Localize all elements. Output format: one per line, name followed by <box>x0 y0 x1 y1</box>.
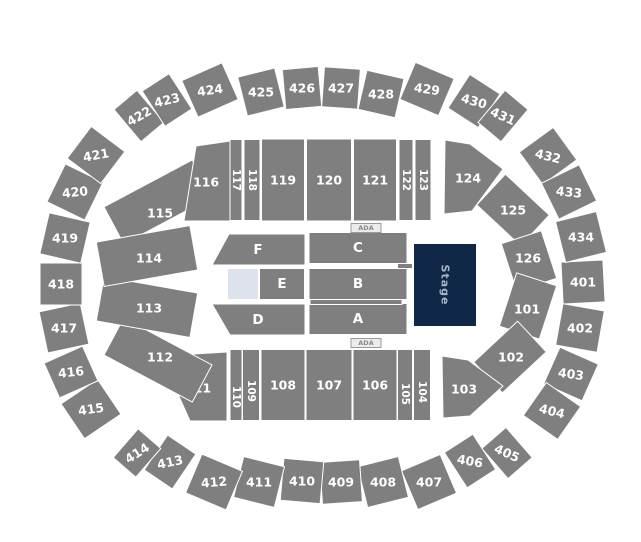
section-122-label: 122 <box>400 169 412 191</box>
floor-F-label: F <box>253 242 262 258</box>
section-427-label: 427 <box>328 81 354 96</box>
section-116[interactable]: 116 <box>184 141 230 221</box>
section-417-label: 417 <box>51 321 77 336</box>
section-113[interactable]: 113 <box>96 277 197 338</box>
section-410[interactable]: 410 <box>280 458 324 503</box>
section-112-label: 112 <box>147 350 173 365</box>
floor-E-label: E <box>277 276 286 292</box>
section-118-label: 118 <box>246 169 258 191</box>
section-114[interactable]: 114 <box>96 226 197 287</box>
floor-C[interactable]: C <box>309 233 407 264</box>
section-425[interactable]: 425 <box>238 68 285 116</box>
section-102-label: 102 <box>498 350 524 365</box>
section-117[interactable]: 117 <box>230 140 242 221</box>
section-411[interactable]: 411 <box>234 457 285 508</box>
section-418-label: 418 <box>48 277 74 292</box>
section-107-label: 107 <box>316 378 342 393</box>
section-119[interactable]: 119 <box>262 139 305 221</box>
floor-D[interactable]: D <box>212 304 305 335</box>
section-103-label: 103 <box>451 382 477 397</box>
floor-D-label: D <box>252 312 263 328</box>
section-420-label: 420 <box>61 183 89 201</box>
section-428[interactable]: 428 <box>358 70 404 118</box>
section-409[interactable]: 409 <box>320 460 363 505</box>
floor-walkway-center <box>310 300 402 305</box>
section-105[interactable]: 105 <box>398 350 413 421</box>
arena-seat-map-page: 4014024034044054064074084094104114124134… <box>0 0 641 542</box>
section-119-label: 119 <box>270 173 296 188</box>
section-433-label: 433 <box>555 183 583 201</box>
section-118[interactable]: 118 <box>244 140 260 221</box>
section-104-label: 104 <box>416 381 428 403</box>
section-419[interactable]: 419 <box>40 213 90 263</box>
section-416-label: 416 <box>57 363 85 381</box>
stage-label: Stage <box>439 265 452 306</box>
section-427[interactable]: 427 <box>322 67 361 109</box>
floor-walkway-center-shape <box>310 300 402 305</box>
section-428-label: 428 <box>368 87 394 102</box>
section-123-label: 123 <box>417 169 429 191</box>
ada-indicator-bottom: ADA <box>351 339 381 348</box>
section-409-label: 409 <box>328 475 354 490</box>
section-104[interactable]: 104 <box>414 350 431 421</box>
section-107[interactable]: 107 <box>306 350 352 421</box>
section-106[interactable]: 106 <box>353 350 397 421</box>
section-106-label: 106 <box>362 378 388 393</box>
section-101-label: 101 <box>514 302 540 317</box>
section-110-shape[interactable] <box>230 350 242 421</box>
floor-walkway-right <box>398 264 413 269</box>
section-101[interactable]: 101 <box>499 273 556 339</box>
section-425-label: 425 <box>248 85 274 100</box>
section-116-label: 116 <box>193 175 219 190</box>
section-401-label: 401 <box>570 275 596 290</box>
section-411-label: 411 <box>246 475 272 490</box>
section-120[interactable]: 120 <box>307 139 352 221</box>
section-126-label: 126 <box>515 251 541 266</box>
section-121-label: 121 <box>362 173 388 188</box>
floor-B-label: B <box>353 276 363 292</box>
section-402-label: 402 <box>567 321 593 336</box>
floor-F[interactable]: F <box>212 234 305 265</box>
open-floor-area <box>228 269 259 300</box>
section-412[interactable]: 412 <box>186 454 243 510</box>
section-113-label: 113 <box>136 301 162 316</box>
section-120-label: 120 <box>316 173 342 188</box>
section-117-label: 117 <box>230 169 242 191</box>
open-floor-area-shape <box>228 269 259 300</box>
section-407[interactable]: 407 <box>401 454 456 509</box>
section-110[interactable]: 110 <box>230 350 242 421</box>
section-109[interactable]: 109 <box>243 350 260 421</box>
section-419-label: 419 <box>52 231 78 246</box>
section-108[interactable]: 108 <box>261 350 305 421</box>
section-434-label: 434 <box>568 230 594 245</box>
section-124-label: 124 <box>455 171 481 186</box>
floor-C-label: C <box>353 240 363 256</box>
section-114-label: 114 <box>136 251 162 266</box>
section-406[interactable]: 406 <box>444 434 495 488</box>
section-418[interactable]: 418 <box>40 263 82 305</box>
section-410-label: 410 <box>289 474 315 489</box>
floor-E[interactable]: E <box>260 269 305 300</box>
floor-walkway-right-shape <box>398 264 413 269</box>
ada-indicator-bottom-label: ADA <box>358 339 373 347</box>
section-408-label: 408 <box>370 475 396 490</box>
section-426-label: 426 <box>289 81 315 96</box>
floor-B[interactable]: B <box>309 269 407 300</box>
floor-A[interactable]: A <box>309 304 407 335</box>
section-407-label: 407 <box>416 475 442 490</box>
section-105-label: 105 <box>399 383 411 405</box>
section-429[interactable]: 429 <box>400 62 454 115</box>
stage: Stage <box>414 244 477 327</box>
section-125-label: 125 <box>500 203 526 218</box>
floor-A-label: A <box>353 311 364 327</box>
ada-indicator-top-label: ADA <box>358 224 373 232</box>
ada-indicator-top: ADA <box>351 224 381 233</box>
section-434[interactable]: 434 <box>556 212 607 263</box>
seat-map: 4014024034044054064074084094104114124134… <box>0 0 641 542</box>
section-115-label: 115 <box>147 206 173 221</box>
section-109-label: 109 <box>245 380 257 402</box>
section-402[interactable]: 402 <box>556 304 605 353</box>
section-108-label: 108 <box>270 378 296 393</box>
section-408[interactable]: 408 <box>358 457 409 508</box>
section-122[interactable]: 122 <box>399 140 413 221</box>
section-412-label: 412 <box>200 473 227 490</box>
section-121[interactable]: 121 <box>354 139 397 221</box>
section-401[interactable]: 401 <box>561 260 605 304</box>
section-123[interactable]: 123 <box>415 140 431 221</box>
section-426[interactable]: 426 <box>282 67 321 110</box>
section-110-label: 110 <box>230 386 242 408</box>
section-417[interactable]: 417 <box>39 303 89 353</box>
